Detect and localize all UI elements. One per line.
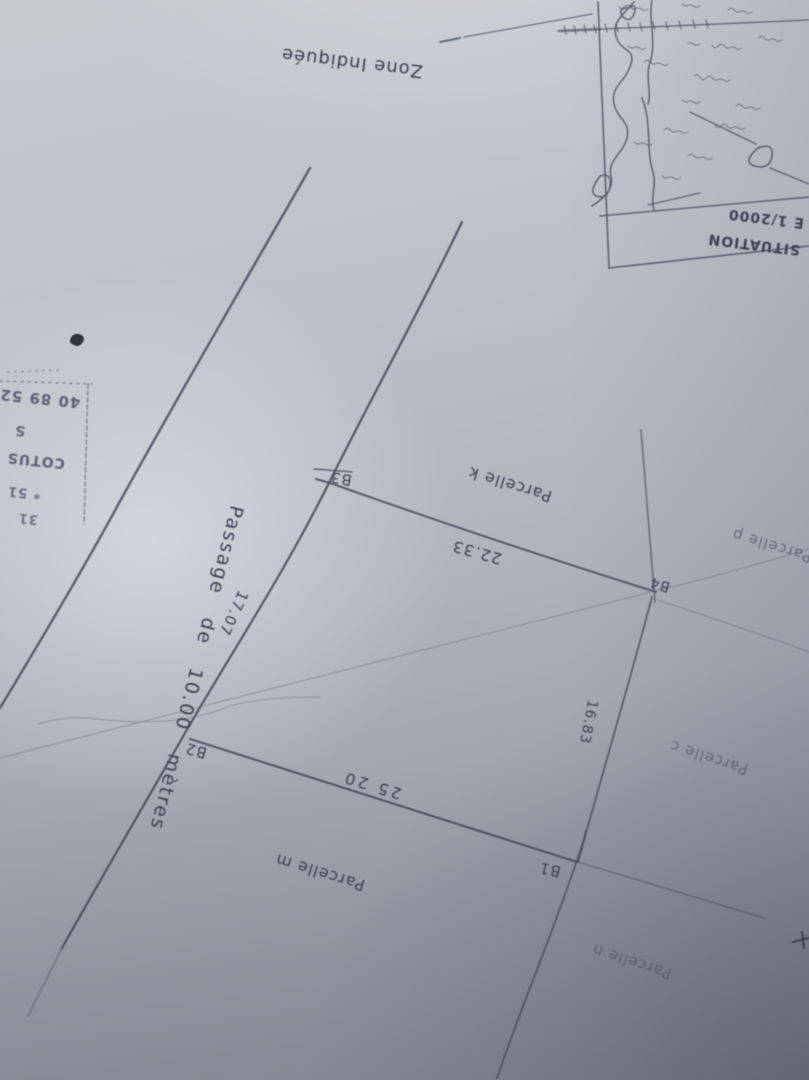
faint-zone-line: [0, 549, 809, 758]
inset-rivers: [592, 0, 772, 210]
zone-callout-leader: [464, 14, 592, 37]
stamp-line-5: 31: [17, 510, 38, 525]
zone-callout-dash: [440, 38, 460, 42]
inset-map-frame: [598, 2, 809, 268]
marker-label-b3: B3: [329, 469, 353, 488]
stamp-line-4: * 51: [7, 484, 42, 500]
marker-label-b1: B1: [538, 859, 562, 878]
ink-blob: [70, 334, 84, 346]
passage-west-line: [0, 168, 310, 708]
boundary-b2-b1-line: [190, 739, 577, 862]
boundary-b3-b2-line: [62, 222, 462, 948]
plan-linework: [0, 0, 809, 1080]
inset-map-roads: [558, 20, 809, 205]
boundary-beyond-b1-fade: [577, 862, 764, 918]
boundary-below-b2-fade: [28, 948, 62, 1016]
faint-b4-east-line: [658, 600, 809, 652]
boundary-b3-b4-line: [316, 479, 656, 592]
photographed-survey-plan: Zone Indiquée E 1/2000 SITUATION Passage…: [0, 0, 809, 1080]
stamp-line-2: S: [14, 422, 26, 437]
survey-cross-mark: [793, 932, 809, 948]
inset-tiny-labels: [619, 4, 782, 180]
marker-label-b2: B2: [184, 740, 209, 760]
